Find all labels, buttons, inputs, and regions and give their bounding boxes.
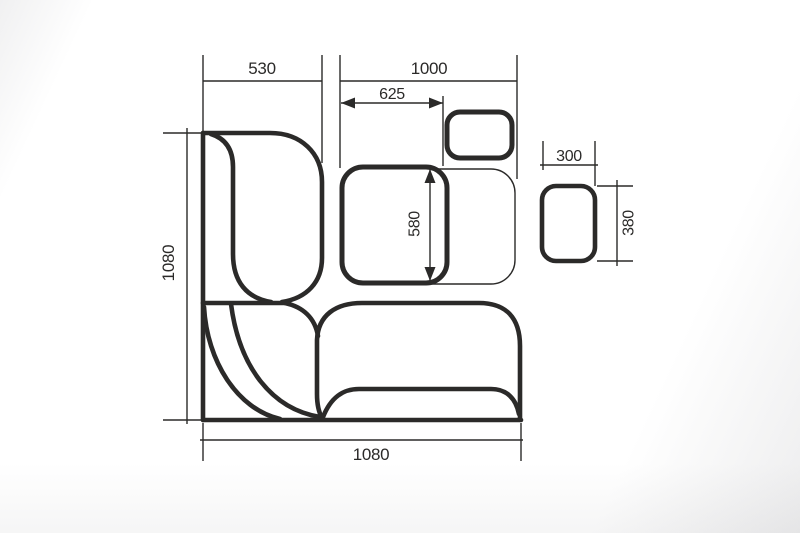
table — [342, 167, 447, 283]
label-left-bench-width: 530 — [248, 59, 275, 78]
stool-top — [447, 112, 512, 158]
arrowhead-625-right — [429, 98, 443, 109]
label-table-depth: 580 — [407, 211, 424, 237]
left-bench-backrest-line — [211, 134, 271, 302]
stool-right — [542, 186, 595, 261]
furniture-plan-drawing: 530 1000 625 580 1080 1080 300 380 — [0, 0, 800, 533]
label-table-zone-width: 1000 — [411, 59, 448, 78]
bottom-bench-seat-outline — [317, 303, 520, 419]
arrowhead-625-left — [341, 98, 355, 109]
label-stool-width: 300 — [556, 148, 582, 165]
label-bottom-side-length: 1080 — [353, 445, 390, 464]
plan-svg: 530 1000 625 580 1080 1080 300 380 — [0, 0, 800, 533]
label-left-side-depth: 1080 — [159, 245, 178, 282]
corner-junction-curve — [285, 303, 318, 336]
label-table-width: 625 — [379, 86, 405, 103]
furniture-outlines — [203, 112, 595, 420]
bottom-bench-backrest-line — [323, 389, 519, 417]
label-stool-depth: 380 — [621, 210, 638, 236]
corner-seat-arc-outer — [204, 307, 280, 419]
left-bench-seat-outline — [203, 133, 322, 302]
